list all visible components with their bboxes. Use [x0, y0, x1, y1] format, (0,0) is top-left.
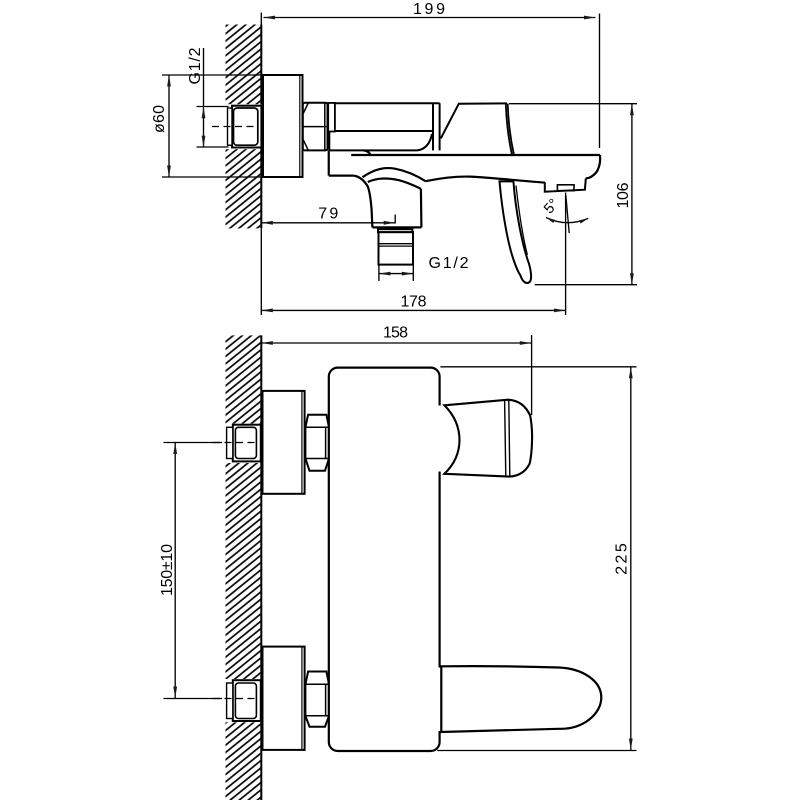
svg-text:225: 225 — [613, 543, 630, 575]
svg-text:106: 106 — [615, 182, 632, 208]
svg-text:G1/2: G1/2 — [429, 255, 469, 272]
svg-text:158: 158 — [383, 325, 408, 342]
svg-text:150±10: 150±10 — [159, 544, 176, 596]
svg-text:G1/2: G1/2 — [187, 47, 204, 84]
svg-text:178: 178 — [401, 293, 427, 310]
svg-text:199: 199 — [413, 1, 445, 18]
svg-text:ø60: ø60 — [151, 105, 168, 133]
